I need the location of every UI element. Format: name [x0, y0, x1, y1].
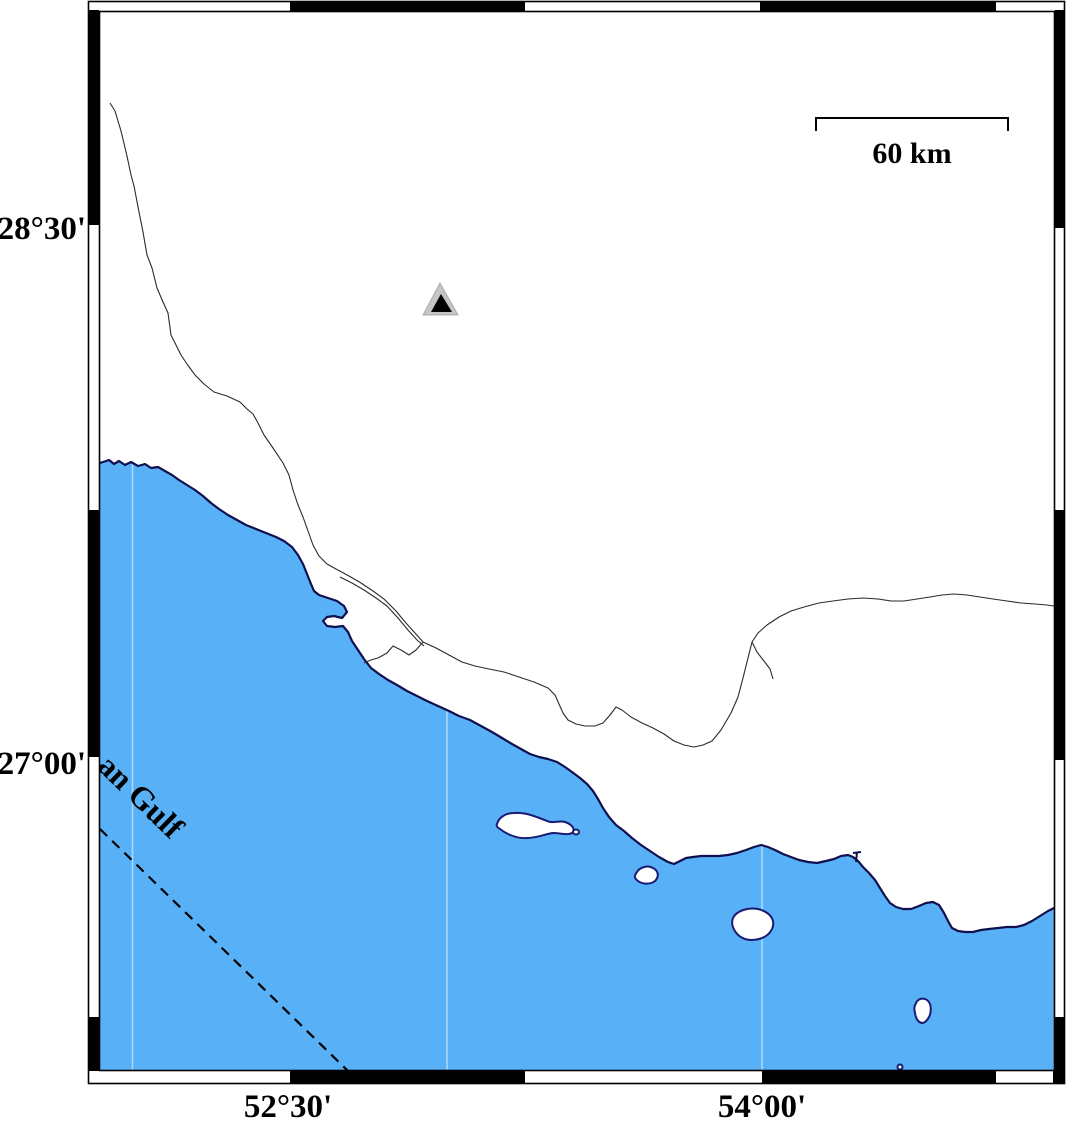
- island-teardrop: [914, 999, 930, 1023]
- lat-label-top: 28°30': [0, 211, 86, 247]
- island-speck-bottom: [898, 1065, 903, 1070]
- map-figure: an Gulf 60 km: [0, 0, 1066, 1121]
- scale-bar: 60 km: [816, 118, 1008, 170]
- border-line-wiggle-to-coast: [364, 642, 423, 663]
- map-canvas: an Gulf 60 km: [91, 12, 1054, 1071]
- scale-bar-bracket: [816, 118, 1008, 131]
- island-small: [635, 867, 658, 884]
- border-line-twin: [340, 577, 424, 646]
- station-triangle-marker: [423, 283, 458, 315]
- border-line-far-east: [752, 594, 1054, 642]
- scale-bar-label: 60 km: [872, 137, 951, 170]
- map-svg: an Gulf 60 km: [0, 0, 1066, 1121]
- lat-label-bottom: 27°00': [0, 746, 86, 782]
- island-round: [732, 908, 773, 939]
- lon-label-right: 54°00': [718, 1089, 806, 1121]
- island-speck-east: [573, 830, 579, 835]
- lon-label-left: 52°30': [244, 1089, 332, 1121]
- sea-area: [100, 460, 1054, 1070]
